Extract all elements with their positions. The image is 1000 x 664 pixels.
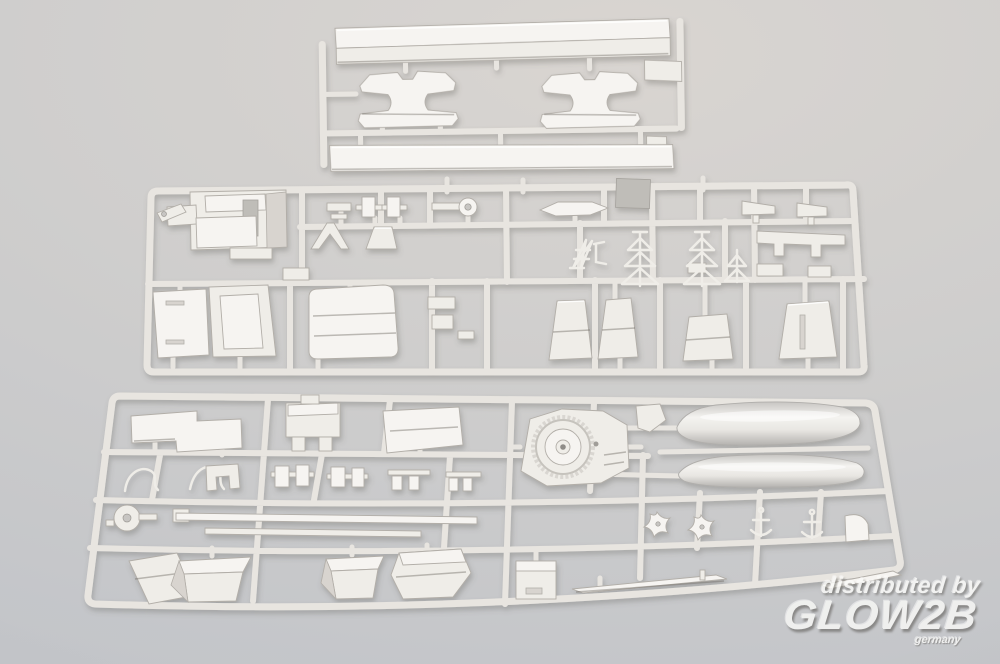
bridge-deck-part [167,190,287,259]
ships-boat-2 [679,455,865,488]
display-stand-cradle-2 [540,71,641,128]
vent-box-2 [321,556,384,599]
funnel-casing-1 [549,300,592,360]
sprue-stand [322,18,683,173]
flange-part [106,505,157,531]
sprues-illustration [0,0,1000,664]
propeller-parts [644,512,714,540]
funnel-casing-2 [598,298,638,359]
rounded-deckhouse-panel [309,285,398,359]
flat-gray-panel [615,178,650,208]
h-block-part [286,395,340,451]
hood-part [845,515,869,542]
lattice-mast-2 [684,232,720,286]
product-photo: distributed by GLOW2B germany [0,0,1000,664]
sprue-hull-fittings [88,395,901,607]
funnel-casing-3 [683,314,733,361]
vent-box-3 [391,549,471,599]
vent-box-1 [171,557,251,602]
vent-box-4 [516,561,556,599]
ships-boat-1 [677,402,860,445]
funnel-casing-4 [779,301,837,359]
wide-panel-part [383,407,463,453]
anchor-parts [751,508,822,538]
deck-panel-2 [209,285,276,357]
row2-fittings [283,223,845,280]
display-stand-cradle-1 [358,71,459,128]
stand-sprue-left-rail [322,44,324,164]
stepped-deck-part [131,411,242,452]
lattice-derrick [570,240,606,268]
turret-platform-part [521,409,629,486]
beam-parts [173,509,477,537]
deck-panel-1 [153,289,209,358]
small-tripod [725,250,749,282]
sprue-superstructure [147,178,864,372]
